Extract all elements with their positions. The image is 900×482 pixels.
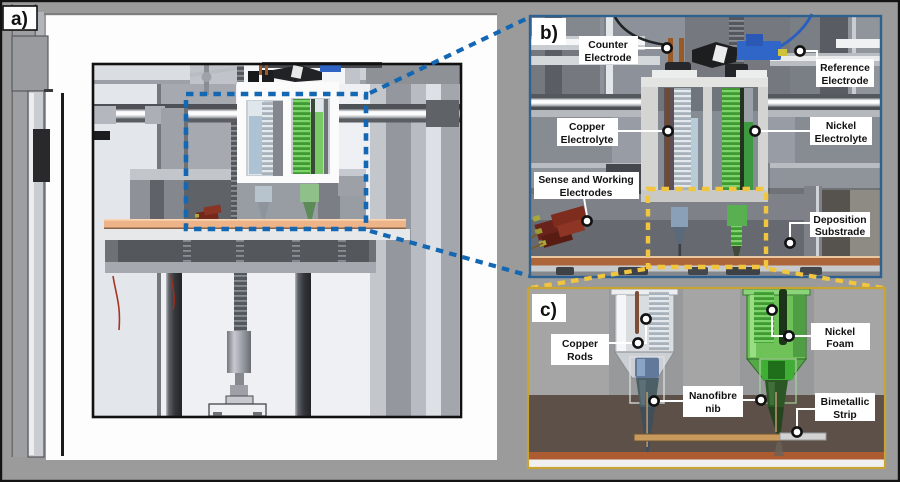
svg-text:Nickel: Nickel (826, 121, 856, 132)
svg-text:Electrodes: Electrodes (560, 188, 613, 199)
svg-text:Substrade: Substrade (815, 227, 866, 238)
svg-text:Nickel: Nickel (825, 327, 855, 338)
svg-text:Electrode: Electrode (585, 53, 632, 64)
svg-text:Electrolyte: Electrolyte (561, 135, 614, 146)
svg-text:Foam: Foam (826, 339, 853, 350)
svg-text:Electrolyte: Electrolyte (815, 134, 868, 145)
svg-text:Nanofibre: Nanofibre (689, 391, 737, 402)
svg-text:Reference: Reference (820, 63, 870, 74)
svg-text:Strip: Strip (833, 410, 856, 421)
svg-text:Copper: Copper (569, 122, 605, 133)
svg-text:Copper: Copper (562, 339, 598, 350)
svg-text:c): c) (540, 300, 557, 321)
svg-text:Electrode: Electrode (822, 76, 869, 87)
svg-text:Deposition: Deposition (813, 215, 866, 226)
svg-text:Sense and Working: Sense and Working (538, 175, 633, 186)
svg-text:Counter: Counter (588, 40, 627, 51)
svg-text:Bimetallic: Bimetallic (821, 397, 870, 408)
svg-text:b): b) (540, 23, 558, 44)
svg-text:a): a) (11, 9, 28, 30)
svg-text:nib: nib (705, 404, 720, 415)
svg-text:Rods: Rods (567, 352, 593, 363)
